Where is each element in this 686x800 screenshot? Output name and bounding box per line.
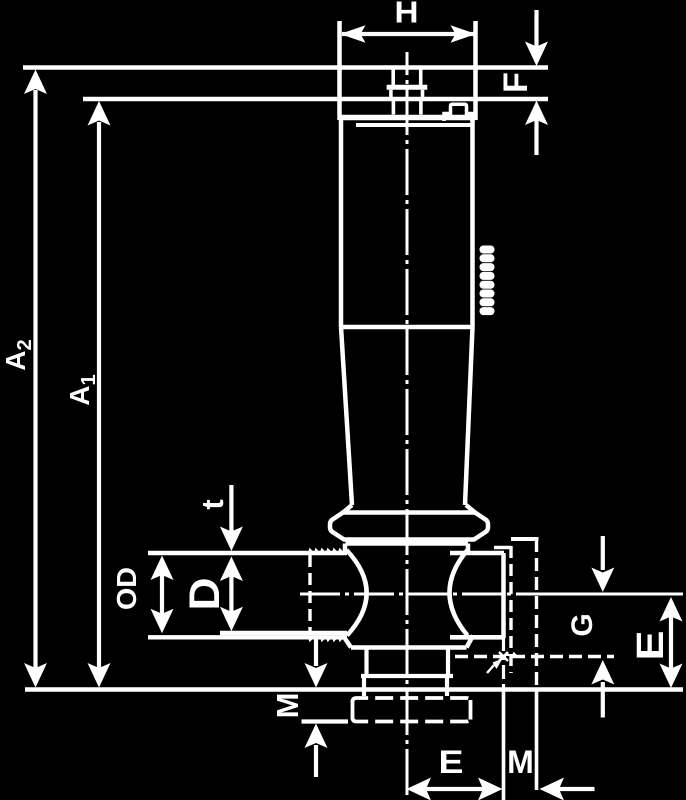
svg-text:A1: A1 <box>64 374 100 405</box>
svg-text:t: t <box>195 499 230 509</box>
svg-text:H: H <box>395 0 419 30</box>
svg-text:M: M <box>270 693 305 719</box>
svg-text:E: E <box>630 631 672 661</box>
svg-text:E: E <box>439 744 464 780</box>
svg-text:G: G <box>566 613 599 636</box>
svg-text:D: D <box>181 578 229 611</box>
svg-text:OD: OD <box>111 567 142 610</box>
svg-text:A2: A2 <box>0 339 36 370</box>
svg-text:F: F <box>497 72 535 93</box>
svg-text:M: M <box>507 744 534 780</box>
